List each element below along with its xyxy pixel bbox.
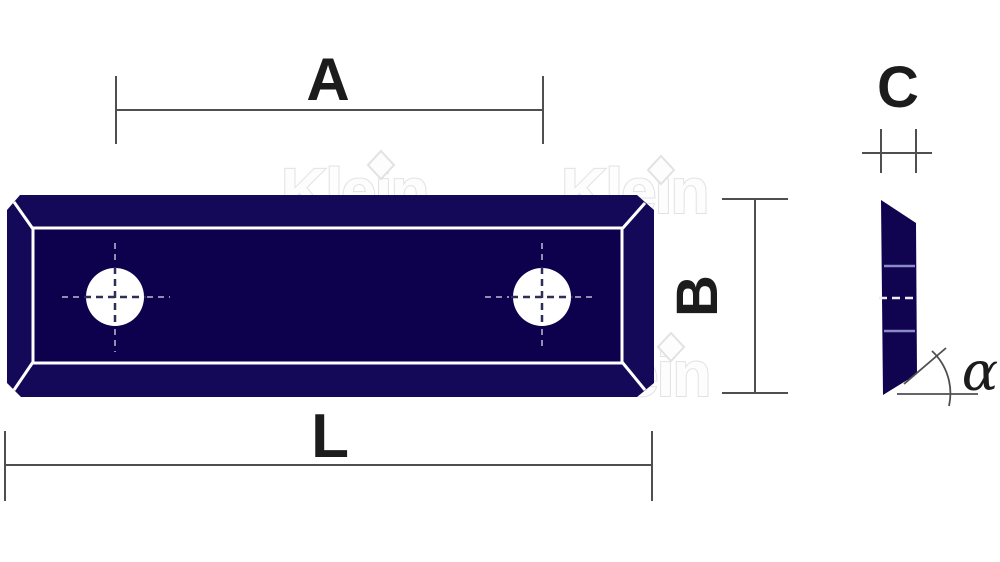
dimension-a: A [116,46,543,144]
insert-knife-drawing: Klein Klein Klein [0,0,1000,562]
side-view-profile [879,200,917,395]
technical-drawing-canvas: Klein Klein Klein [0,0,1000,562]
dim-l-label: L [311,402,349,471]
dimension-l: L [5,402,652,501]
dim-c-label: C [877,55,919,120]
angle-arc [932,351,950,406]
dim-b-label: B [665,275,730,317]
angle-alpha-label: α [962,340,998,403]
dimension-c: C [862,55,932,173]
front-view-plate [7,195,654,397]
dim-a-label: A [306,46,349,113]
